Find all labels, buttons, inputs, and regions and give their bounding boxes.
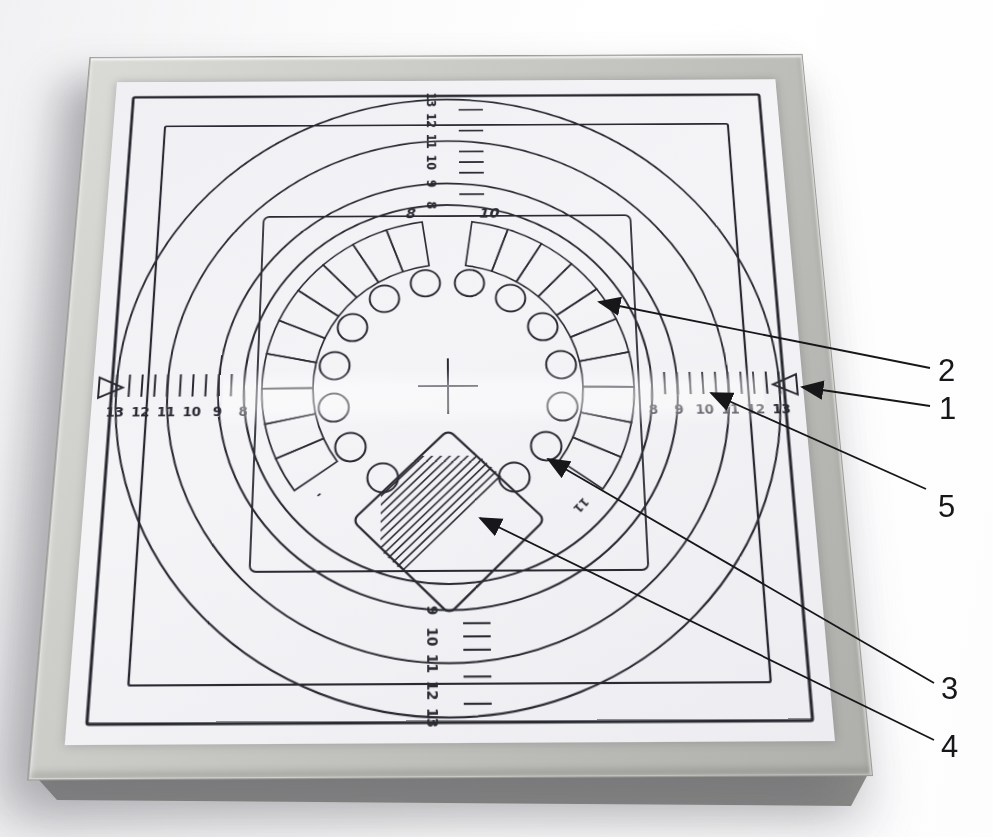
callout-3-leader-line (548, 459, 934, 683)
callout-5-leader-line (711, 393, 926, 489)
callout-annotations: 2 1 5 3 4 (0, 0, 993, 837)
callout-1-leader-line (802, 387, 930, 406)
test-chart-photo-scene: 1312111098 8910111213 1312111098 9101112… (0, 0, 993, 837)
callout-label-2: 2 (938, 353, 955, 388)
callout-label-4: 4 (941, 729, 958, 764)
callout-2-leader-line (599, 302, 930, 368)
callout-label-1: 1 (939, 391, 956, 426)
callout-label-5: 5 (938, 489, 955, 524)
callout-label-3: 3 (941, 671, 958, 706)
